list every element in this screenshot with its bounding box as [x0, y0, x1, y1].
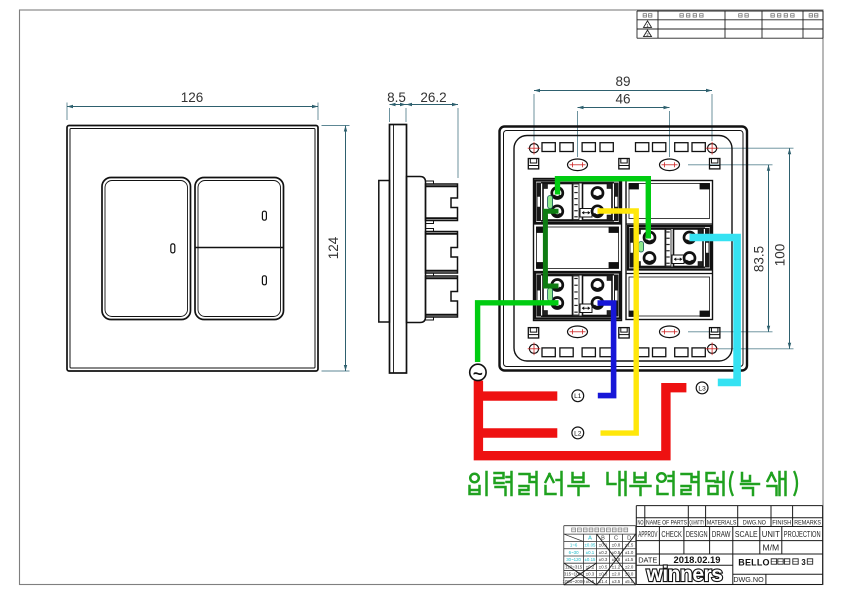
svg-text:DRAW: DRAW	[712, 530, 731, 539]
svg-text:83.5: 83.5	[752, 246, 767, 272]
svg-text:±2.0: ±2.0	[612, 572, 621, 577]
svg-text:±0.8: ±0.8	[612, 543, 621, 548]
svg-text:±0.3: ±0.3	[599, 557, 608, 562]
svg-text:C: C	[614, 536, 618, 542]
svg-text:8.5: 8.5	[387, 90, 406, 105]
svg-text:±0.1: ±0.1	[586, 550, 595, 555]
svg-text:CHECK: CHECK	[661, 530, 682, 539]
svg-text:DESIGN: DESIGN	[686, 530, 708, 539]
svg-text:MATERIALS: MATERIALS	[707, 519, 737, 526]
svg-text:±1.0: ±1.0	[625, 550, 634, 555]
svg-text:NO: NO	[638, 519, 644, 526]
svg-text:126: 126	[181, 90, 204, 105]
svg-text:SCALE: SCALE	[735, 530, 758, 539]
svg-text:REMARKS: REMARKS	[794, 519, 821, 526]
svg-text:89: 89	[615, 74, 630, 89]
svg-text:1~6: 1~6	[570, 543, 578, 548]
svg-text:6~30: 6~30	[569, 550, 579, 555]
svg-text:DWG.NO: DWG.NO	[733, 575, 764, 584]
svg-text:FINISH: FINISH	[772, 519, 791, 526]
svg-text:±1.2: ±1.2	[612, 564, 621, 569]
svg-text:L3: L3	[698, 385, 706, 392]
svg-text:100: 100	[773, 244, 788, 267]
svg-text:26.2: 26.2	[420, 90, 446, 105]
svg-text:±0.2: ±0.2	[599, 550, 608, 555]
svg-text:L1: L1	[574, 393, 582, 400]
svg-text:~: ~	[473, 364, 483, 383]
svg-text:±0.5: ±0.5	[599, 564, 608, 569]
svg-text:A: A	[588, 536, 592, 542]
svg-text:±0.5: ±0.5	[612, 550, 621, 555]
svg-text:PROJECTION: PROJECTION	[784, 530, 821, 539]
svg-text:30~120: 30~120	[566, 557, 581, 562]
svg-text:M/M: M/M	[762, 543, 779, 553]
svg-text:±1.5: ±1.5	[625, 557, 634, 562]
svg-text:NAME OF PARTS: NAME OF PARTS	[646, 519, 687, 526]
svg-text:46: 46	[615, 92, 630, 107]
svg-text:124: 124	[326, 236, 341, 259]
svg-text:3: 3	[801, 558, 806, 567]
svg-text:BELLO: BELLO	[738, 558, 770, 568]
svg-text:±2.0: ±2.0	[625, 564, 634, 569]
svg-text:APPROV: APPROV	[638, 530, 657, 539]
svg-text:±0.05: ±0.05	[585, 543, 597, 548]
svg-text:DWG.NO: DWG.NO	[743, 519, 766, 526]
svg-text:winners: winners	[646, 563, 724, 586]
svg-text:±0.3: ±0.3	[586, 572, 595, 577]
svg-text:QUANTITY: QUANTITY	[690, 519, 705, 526]
svg-text:UNIT: UNIT	[762, 530, 780, 539]
svg-text:±3.5: ±3.5	[612, 579, 621, 584]
svg-text:L2: L2	[574, 430, 582, 437]
svg-text:±0.15: ±0.15	[585, 557, 597, 562]
